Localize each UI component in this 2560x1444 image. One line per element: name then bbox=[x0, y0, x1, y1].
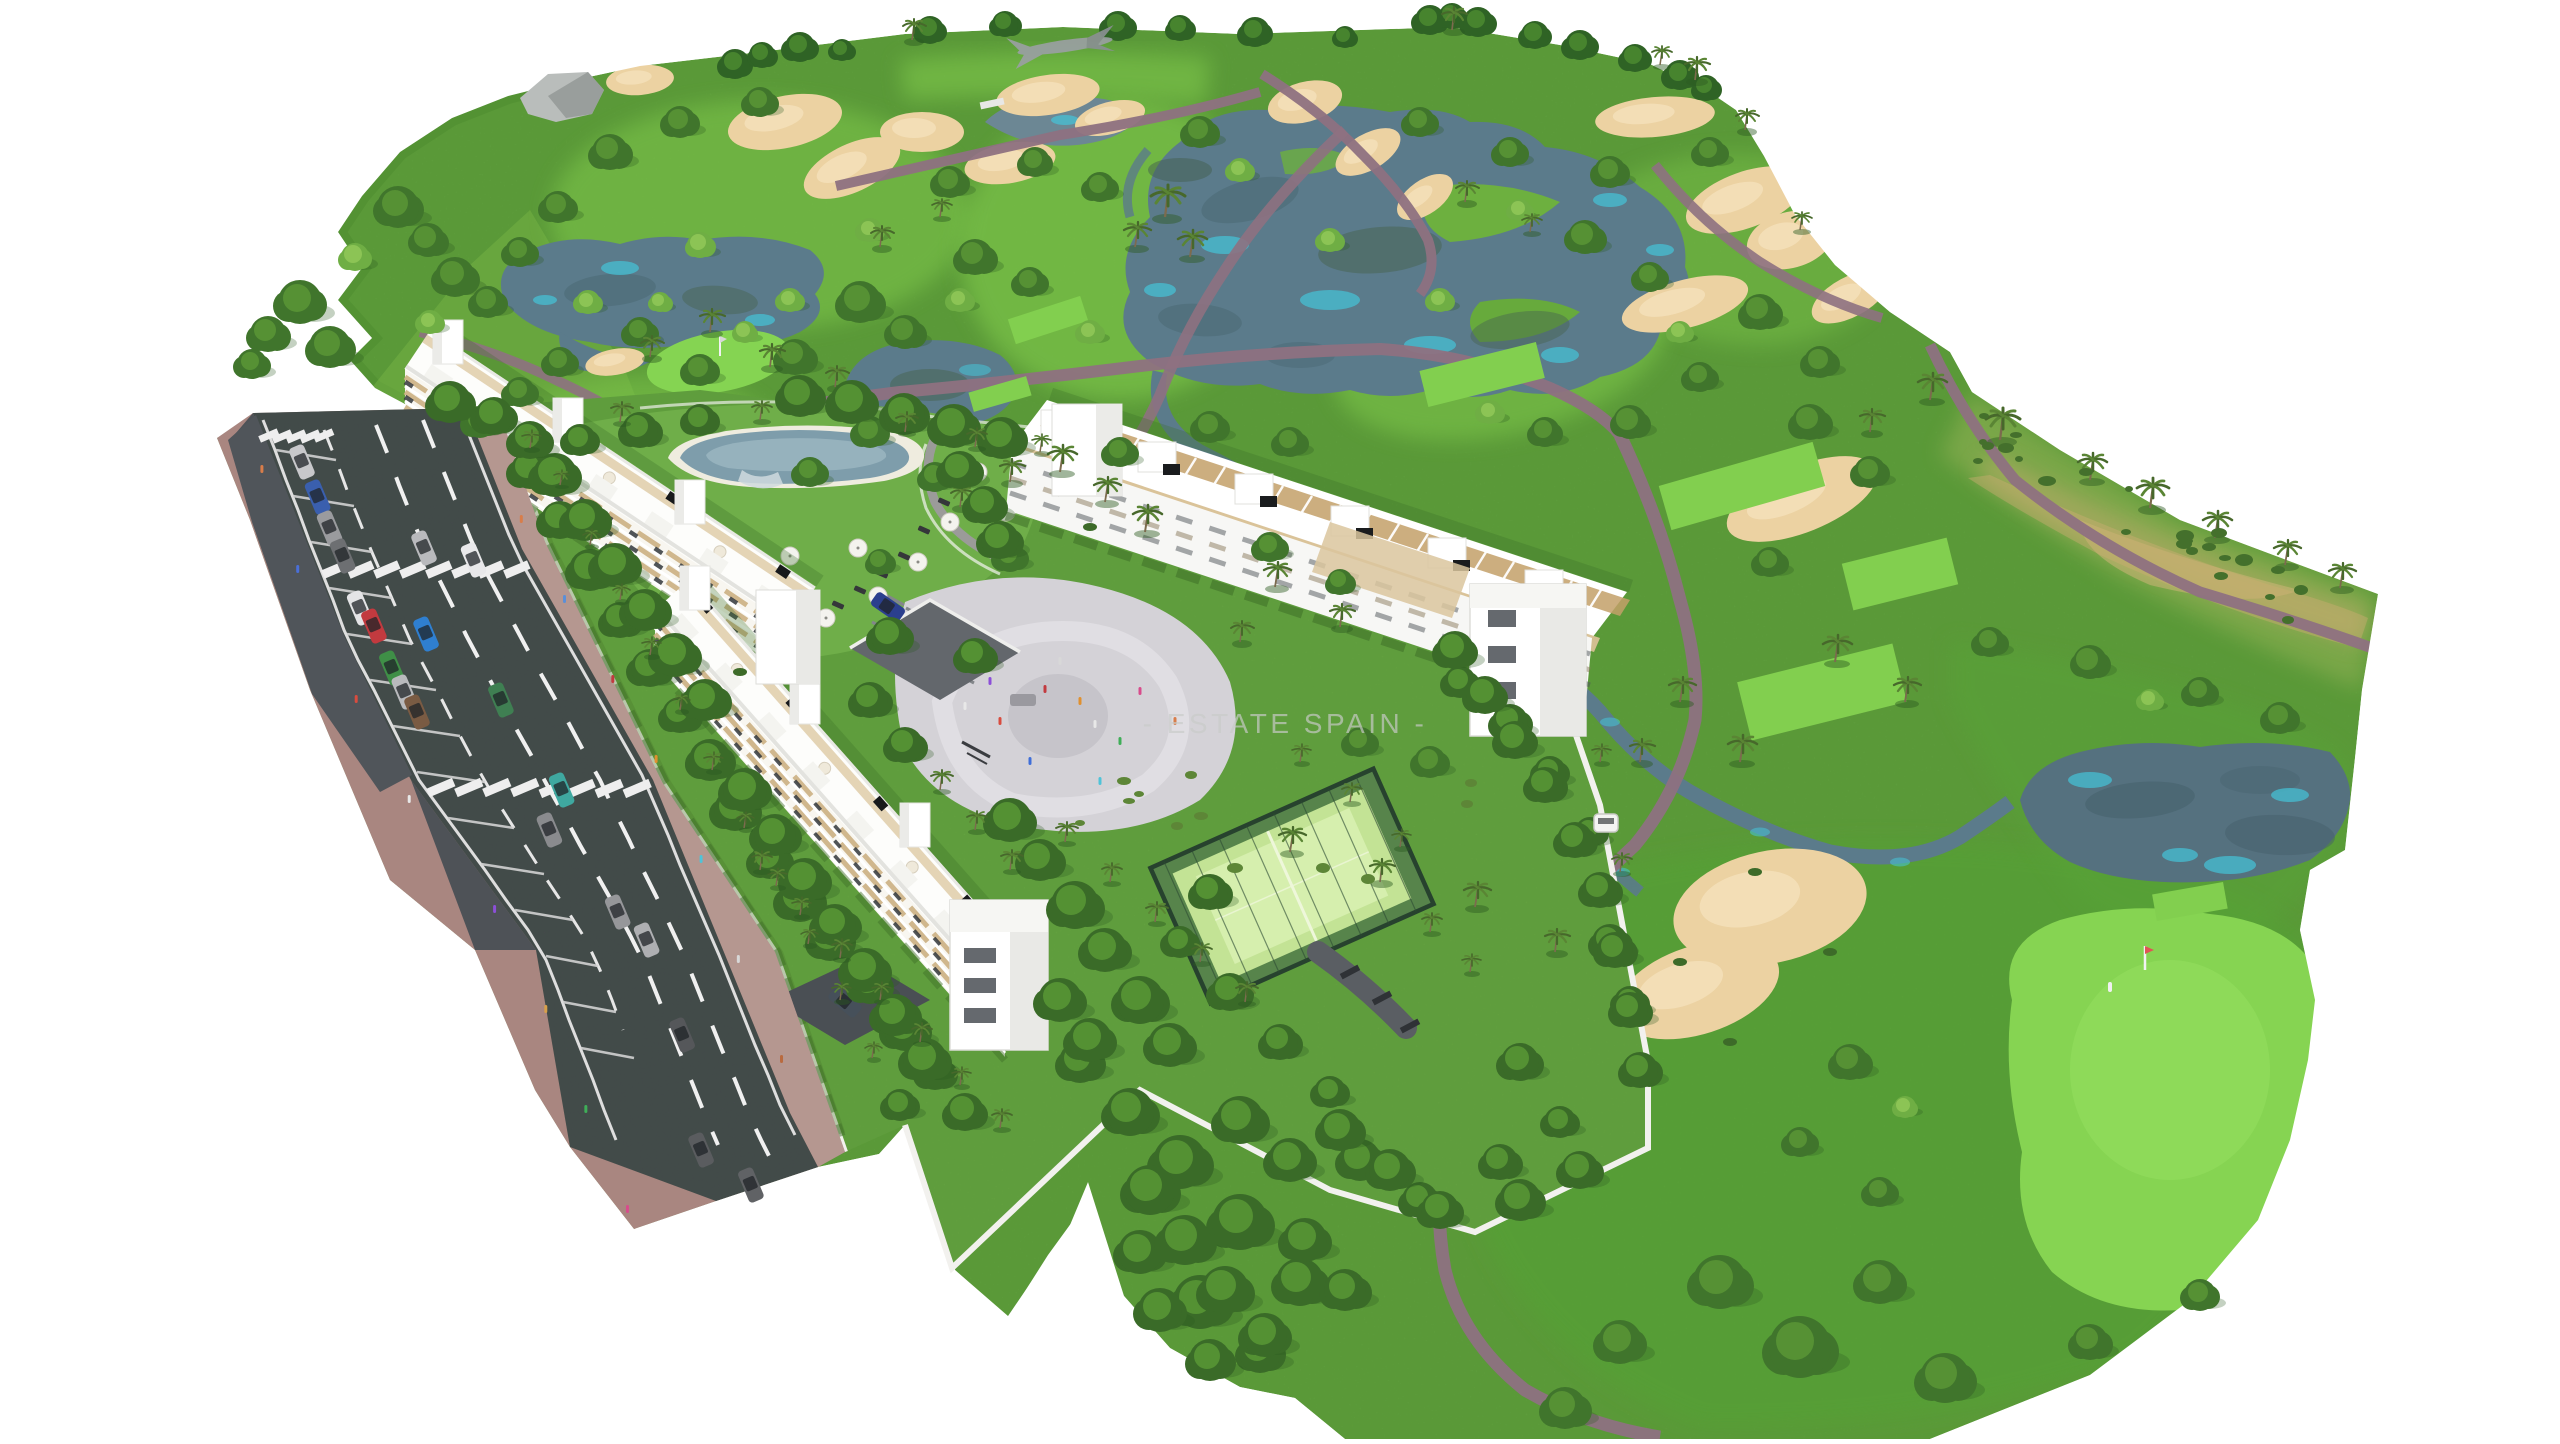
svg-text:- ESTATE SPAIN -: - ESTATE SPAIN - bbox=[1143, 708, 1428, 739]
